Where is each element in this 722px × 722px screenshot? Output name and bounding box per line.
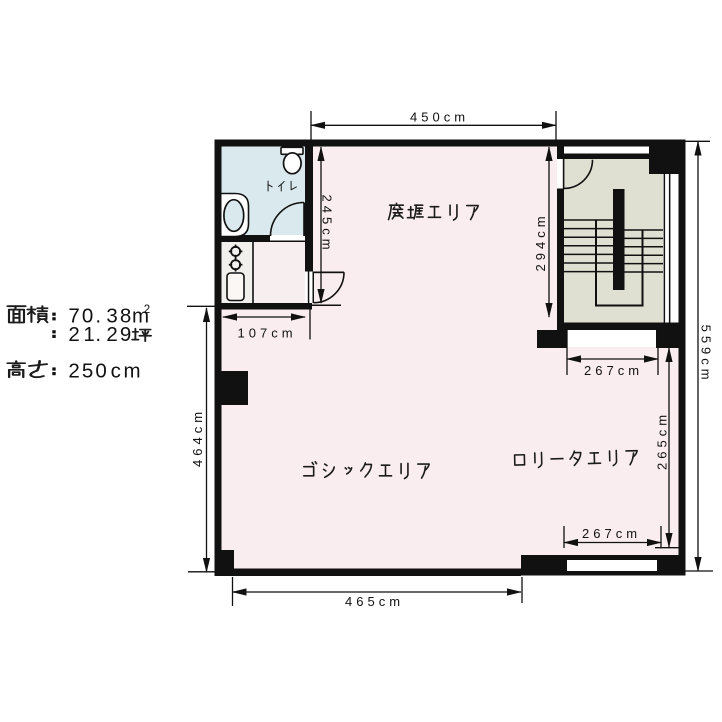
svg-text:107cm: 107cm [238,326,297,341]
svg-text:464cm: 464cm [190,408,205,467]
svg-text:294cm: 294cm [533,212,548,271]
svg-text:21.29: 21.29 [68,323,131,346]
svg-text:265cm: 265cm [655,411,670,470]
svg-text:267cm: 267cm [582,526,641,541]
svg-text:2: 2 [144,304,150,316]
svg-text:450cm: 450cm [410,110,469,125]
svg-text:245cm: 245cm [319,195,334,254]
svg-text:465cm: 465cm [345,594,404,609]
svg-text:250: 250 [68,359,106,382]
svg-text:267cm: 267cm [584,363,643,378]
svg-text:559cm: 559cm [699,325,714,384]
svg-text:cm: cm [111,359,141,382]
